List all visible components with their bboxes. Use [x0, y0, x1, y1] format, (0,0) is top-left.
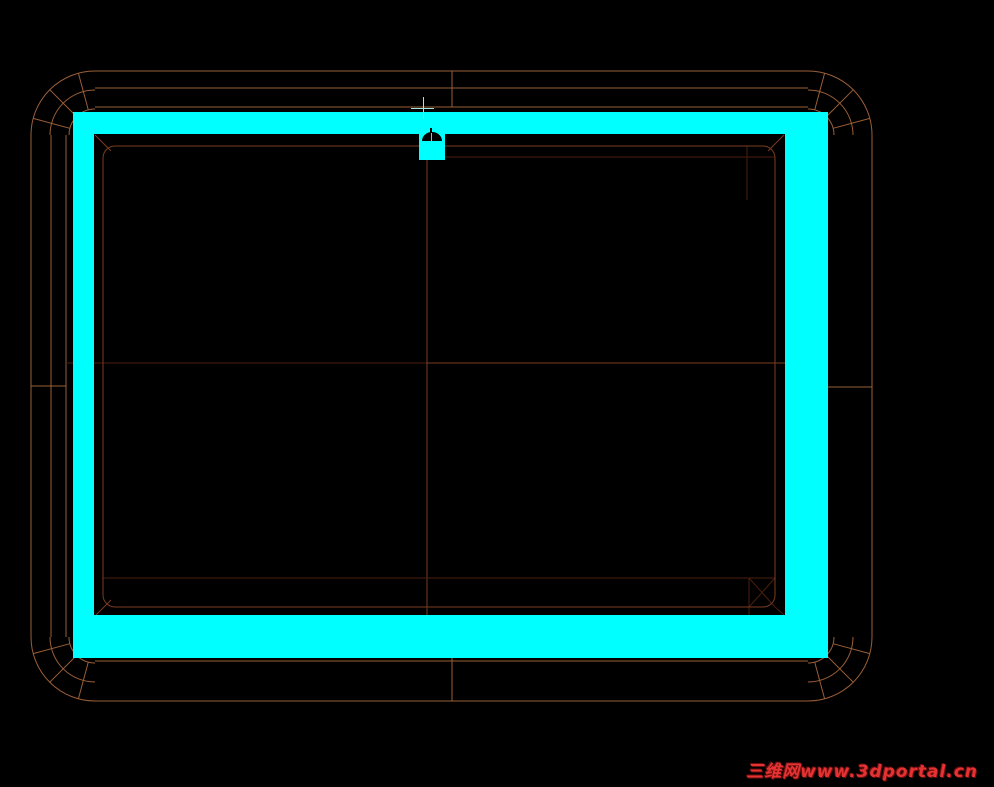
selection-band-top[interactable]	[73, 112, 828, 134]
selection-band-left[interactable]	[73, 112, 94, 658]
watermark-text: 三维网www.3dportal.cn	[746, 757, 978, 782]
crosshair-v-line	[423, 97, 424, 119]
camera-top-tick	[430, 128, 432, 133]
selection-band-right[interactable]	[785, 112, 828, 658]
selection-band-bottom[interactable]	[73, 615, 828, 658]
cad-viewport[interactable]: 三维网www.3dportal.cn	[0, 0, 994, 787]
camera-hole-slit	[431, 133, 432, 141]
